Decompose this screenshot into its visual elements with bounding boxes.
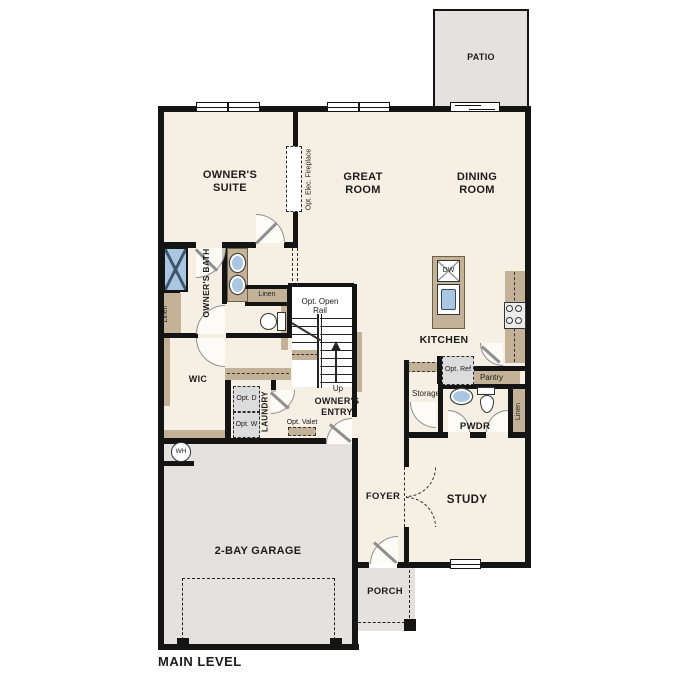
wall	[404, 437, 409, 467]
patio-slider-door	[450, 102, 500, 112]
storage-label: Storage	[404, 388, 448, 399]
wall	[226, 333, 290, 338]
garage-label: 2-BAY GARAGE	[214, 534, 302, 568]
burner	[515, 305, 522, 312]
window	[450, 559, 481, 569]
floor-plan: Opt. D Opt. W Opt. Ref WH PATIO OWNER'S …	[0, 0, 687, 687]
laundry-top-wall	[225, 368, 291, 380]
linen-pwdr-label: Linen	[514, 394, 525, 429]
kitchen-label: KITCHEN	[410, 333, 478, 348]
wall	[245, 302, 291, 306]
wall	[158, 461, 194, 466]
linen-hall-label: Linen	[247, 289, 287, 302]
garage-door-pier	[330, 638, 342, 645]
stair-rail-line-2	[321, 314, 323, 388]
vanity-sink	[230, 276, 245, 294]
wic-label: WIC	[178, 373, 218, 386]
wic-wall-finish	[163, 338, 170, 406]
optional-fireplace	[286, 146, 302, 212]
window	[327, 102, 359, 112]
dining-room-label: DINING ROOM	[442, 166, 512, 202]
kitchen-side-finish	[357, 332, 362, 392]
toilet-tank	[277, 312, 286, 331]
foyer-label: FOYER	[361, 490, 405, 504]
owners-bath-label: OWNER'S BATH	[188, 247, 224, 319]
wall	[525, 106, 531, 568]
laundry-label: LAUNDRY	[259, 383, 272, 441]
window	[196, 102, 228, 112]
up-arrow-shaft	[335, 350, 337, 382]
laundry-wall-dash	[227, 373, 289, 374]
water-heater: WH	[171, 442, 191, 462]
wall	[158, 333, 198, 338]
opt-washer-label: Opt. W	[234, 413, 259, 437]
opt-valet-label: Opt. Valet	[286, 412, 318, 434]
wall	[397, 562, 410, 568]
pwdr-toilet-tank	[477, 387, 495, 395]
dishwasher-label: DW	[437, 260, 460, 282]
garage-door-outline	[182, 578, 335, 645]
island-sink	[441, 289, 456, 310]
window	[228, 102, 260, 112]
up-label: Up	[325, 383, 351, 394]
wall	[352, 438, 358, 650]
stair-rail-line-1	[317, 314, 319, 388]
burner	[506, 317, 513, 324]
patio-label: PATIO	[433, 50, 529, 64]
optional-opening-dash	[297, 248, 298, 286]
owners-suite-label: OWNER'S SUITE	[188, 164, 272, 200]
porch-label: PORCH	[358, 585, 412, 598]
wall	[404, 527, 409, 562]
great-room-label: GREAT ROOM	[328, 166, 398, 202]
garage-door-pier	[177, 638, 189, 645]
wall	[158, 106, 164, 650]
wall	[288, 283, 292, 321]
wall	[404, 432, 448, 438]
burner	[515, 317, 522, 324]
optional-dryer: Opt. D	[233, 386, 260, 412]
optional-counter	[407, 362, 440, 372]
stair-landing-dash	[292, 354, 318, 355]
wall	[508, 432, 526, 438]
wall	[404, 360, 409, 438]
open-rail-label: Opt. Open Rail	[294, 294, 346, 318]
optional-opening-dash	[292, 248, 293, 286]
study-label: STUDY	[436, 492, 498, 509]
pwdr-sink	[451, 389, 472, 404]
pwdr-label: PWDR	[455, 420, 495, 433]
pantry-label: Pantry	[463, 371, 520, 384]
up-arrow-head	[331, 341, 341, 351]
fireplace-label: Opt. Elec. Fireplace	[305, 142, 316, 218]
plan-title: MAIN LEVEL	[158, 653, 308, 671]
wall	[225, 380, 231, 444]
optional-washer: Opt. W	[233, 412, 260, 438]
shower	[163, 247, 188, 292]
stair-landing	[292, 350, 318, 360]
opt-dryer-label: Opt. D	[234, 387, 259, 411]
wall	[284, 242, 298, 248]
water-heater-label: WH	[172, 443, 190, 461]
wall	[508, 384, 513, 437]
vanity-sink	[230, 254, 245, 272]
wic-bottom-finish	[163, 430, 225, 438]
burner	[506, 305, 513, 312]
wall	[226, 242, 256, 248]
window	[359, 102, 390, 112]
porch-column	[404, 619, 416, 631]
linen-bath-label: Linen	[160, 296, 172, 332]
toilet-bowl	[260, 313, 277, 330]
